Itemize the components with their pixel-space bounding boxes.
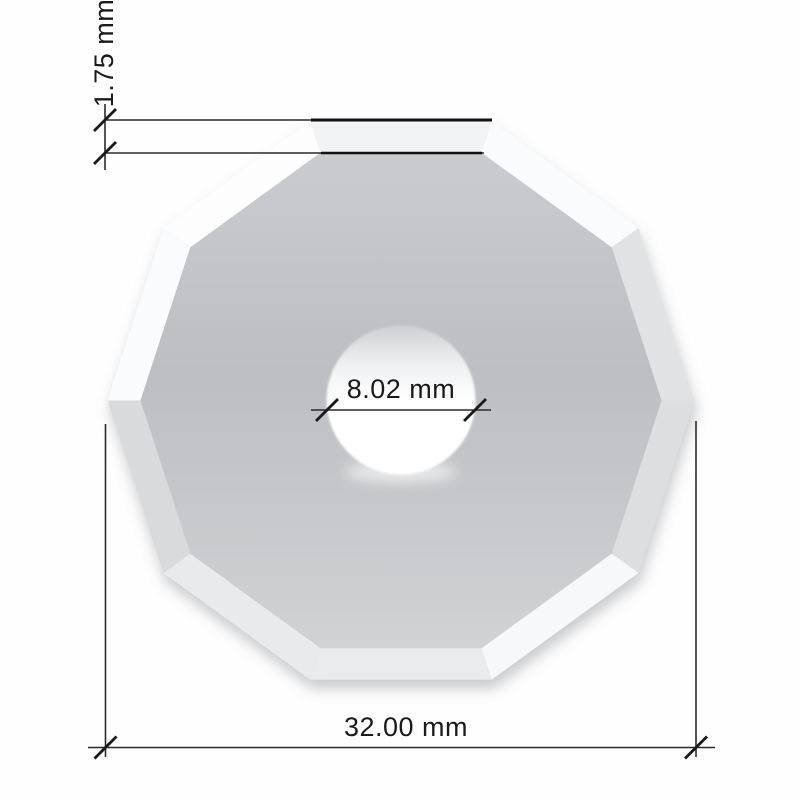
bevel-facet-4 bbox=[310, 648, 491, 679]
hole-bottom-highlight bbox=[345, 461, 457, 483]
bevel-width-dimension-label: 1.75 mm bbox=[87, 0, 121, 133]
technical-drawing-canvas: 1.75 mm 8.02 mm 32.00 mm bbox=[0, 0, 800, 800]
bevel-facet-9 bbox=[310, 121, 491, 152]
outer-diameter-dimension-label: 32.00 mm bbox=[296, 710, 516, 744]
hole-diameter-dimension-label: 8.02 mm bbox=[301, 372, 501, 406]
